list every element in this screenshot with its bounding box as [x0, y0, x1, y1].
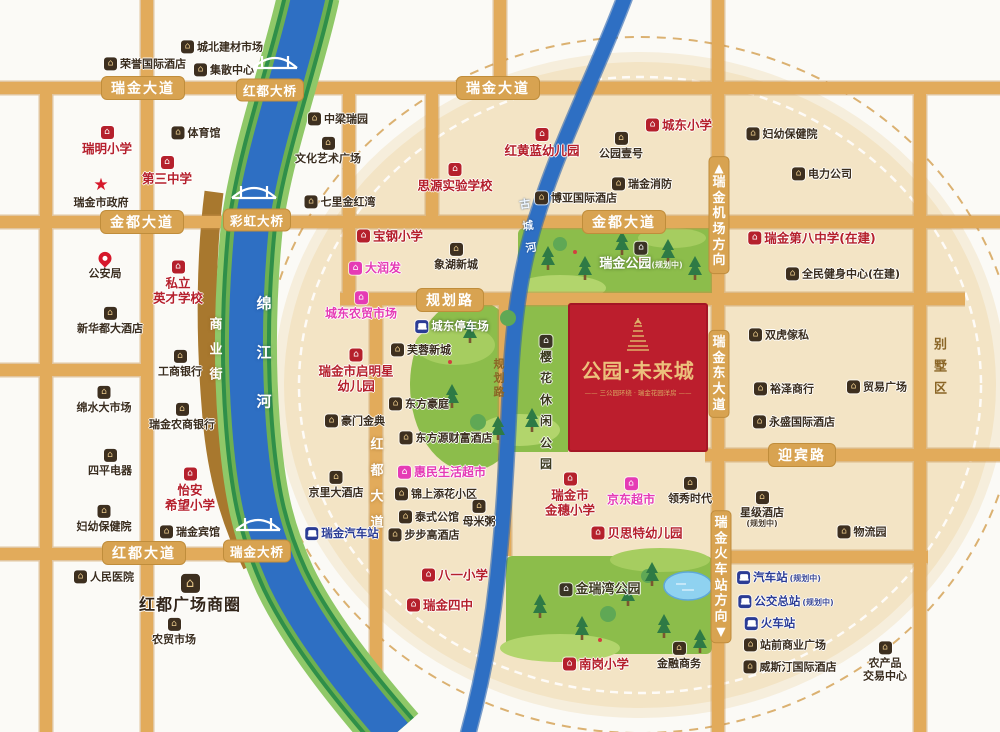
school-icon: ⌂ — [183, 468, 196, 481]
shopping-icon: ⌂ — [624, 477, 637, 490]
poi-label: 第三中学 — [142, 171, 192, 186]
road-name-badge: 红都大道 — [102, 541, 186, 565]
poi-label: 公园壹号 — [599, 147, 643, 160]
map-poi: ⌂八一小学 — [422, 568, 488, 583]
villa-district-name: 别墅区 — [934, 339, 948, 396]
poi-label: 怡安希望小学 — [165, 483, 215, 513]
poi-label: 农贸市场 — [152, 633, 196, 646]
poi-label: 惠民生活超市 — [414, 465, 486, 479]
police-pin-icon — [96, 249, 114, 267]
map-poi: ⌂南岗小学 — [563, 657, 629, 672]
map-poi: ⌂瑞金市金穗小学 — [545, 473, 595, 518]
building-icon: ⌂ — [786, 268, 799, 281]
poi-label: 京里大酒店 — [309, 486, 364, 499]
pond — [664, 572, 712, 600]
bridge-name-badge: 彩虹大桥 — [223, 209, 291, 232]
poi-label: 瑞金市金穗小学 — [545, 488, 595, 518]
poi-label: 物流园 — [854, 525, 887, 538]
map-poi: ⌂第三中学 — [142, 156, 192, 186]
school-icon: ⌂ — [160, 156, 173, 169]
poi-label: 泰式公馆 — [415, 510, 459, 523]
building-icon: ⌂ — [400, 432, 413, 445]
poi-label: 瑞金汽车站 — [321, 527, 379, 541]
map-poi: ⌂樱花休闲公园 — [540, 335, 553, 471]
map-poi: ⌂大润发 — [349, 261, 401, 275]
poi-label: 贝思特幼儿园 — [607, 526, 682, 541]
poi-label: 红黄蓝幼儿园 — [504, 143, 579, 158]
poi-label: 京东超市 — [607, 492, 655, 506]
poi-label: 八一小学 — [438, 568, 488, 583]
building-icon: ⌂ — [615, 132, 628, 145]
building-icon: ⌂ — [395, 488, 408, 501]
map-poi: 公安局 — [89, 252, 122, 280]
poi-label: 七里金红湾 — [321, 195, 376, 208]
map-poi: ★瑞金市政府 — [74, 177, 129, 209]
building-icon: ⌂ — [744, 661, 757, 674]
building-icon: ⌂ — [389, 398, 402, 411]
poi-label: 瑞金市启明星幼儿园 — [318, 364, 393, 394]
map-poi: ⌂妇幼保健院 — [77, 505, 132, 533]
building-icon: ⌂ — [612, 178, 625, 191]
poi-label: 思源实验学校 — [417, 178, 492, 193]
hongdu-avenue-vertical-name: 红都大道 — [370, 439, 383, 530]
map-poi: ⌂双虎傢私 — [749, 328, 809, 341]
road-name-badge-vertical: 瑞金东大道 — [708, 330, 729, 418]
map-poi: ⌂领秀时代 — [668, 477, 712, 505]
map-poi: ⌂公园壹号 — [599, 132, 643, 160]
poi-label: 瑞金农商银行 — [149, 418, 215, 431]
map-poi: ⌂瑞金四中 — [407, 598, 473, 613]
building-icon: ⌂ — [98, 386, 111, 399]
poi-label: 四平电器 — [88, 464, 132, 477]
map-poi: ⌂中梁瑞园 — [308, 112, 368, 125]
map-poi: ⌂豪门金典 — [325, 414, 385, 427]
building-icon: ⌂ — [753, 416, 766, 429]
map-poi: ⌂工商银行 — [158, 350, 202, 378]
building-icon: ⌂ — [744, 639, 757, 652]
shopping-icon: ⌂ — [398, 465, 411, 478]
poi-label: 大润发 — [365, 261, 401, 275]
building-icon: ⌂ — [104, 449, 117, 462]
poi-label: 电力公司 — [808, 167, 852, 180]
school-icon: ⌂ — [349, 349, 362, 362]
building-icon: ⌂ — [535, 192, 548, 205]
poi-label: 荣誉国际酒店 — [120, 57, 186, 70]
poi-label: 公交总站(规划中) — [754, 595, 833, 609]
poi-label: 芙蓉新城 — [407, 343, 451, 356]
poi-label: 威斯汀国际酒店 — [760, 660, 837, 673]
map-poi: ⌂博亚国际酒店 — [535, 191, 617, 204]
building-icon: ⌂ — [305, 196, 318, 209]
road-name-badge: 瑞金大道 — [101, 76, 185, 100]
map-poi: ⌂体育馆 — [172, 126, 221, 139]
poi-label: 火车站 — [761, 617, 796, 631]
poi-label: 文化艺术广场 — [295, 152, 361, 165]
map-poi: ⌂京里大酒店 — [309, 471, 364, 499]
building-icon: ⌂ — [325, 415, 338, 428]
shopping-icon: ⌂ — [349, 261, 362, 274]
poi-label: 东方豪庭 — [405, 397, 449, 410]
bus-icon — [305, 527, 318, 540]
road-name-badge: 金都大道 — [582, 210, 666, 234]
poi-label: 豪门金典 — [341, 414, 385, 427]
poi-label: 中梁瑞园 — [324, 112, 368, 125]
poi-label: 锦上添花小区 — [411, 487, 477, 500]
project-site-block: 公园·未来城 —— 三公园环绕 · 瑞金花园洋房 —— — [568, 303, 708, 452]
poi-label: 城东农贸市场 — [325, 306, 397, 320]
map-poi: ⌂思源实验学校 — [417, 163, 492, 193]
school-icon: ⌂ — [563, 473, 576, 486]
project-name: 公园·未来城 — [581, 355, 695, 384]
map-poi: 汽车站(规划中) — [737, 571, 821, 585]
poi-label: 象湖新城 — [434, 258, 478, 271]
poi-label: 全民健身中心(在建) — [802, 267, 900, 280]
building-icon: ⌂ — [308, 113, 321, 126]
map-poi: ⌂瑞金第八中学(在建) — [748, 231, 875, 246]
map-poi: ⌂农贸市场 — [152, 618, 196, 646]
bus-glyph — [740, 574, 748, 579]
bus-icon — [745, 617, 758, 630]
poi-label: 贸易广场 — [863, 380, 907, 393]
shopping-icon: ⌂ — [354, 291, 367, 304]
map-poi: ⌂永盛国际酒店 — [753, 415, 835, 428]
map-poi: ⌂瑞明小学 — [82, 126, 132, 156]
arrow-down-icon: ▼ — [716, 626, 725, 638]
map-poi: ⌂瑞金公园(规划中) — [599, 242, 682, 273]
poi-label: 瑞金公园(规划中) — [599, 257, 682, 273]
mall-icon: ⌂ — [180, 574, 199, 593]
map-poi: ⌂城东农贸市场 — [325, 291, 397, 320]
building-icon: ⌂ — [792, 168, 805, 181]
map-poi: ⌂城北建材市场 — [181, 40, 263, 53]
poi-label: 瑞明小学 — [82, 141, 132, 156]
planned-road-vertical-name: 规划路 — [494, 359, 505, 398]
map-poi: ⌂威斯汀国际酒店 — [744, 660, 837, 673]
building-icon: ⌂ — [847, 381, 860, 394]
poi-label: 新华都大酒店 — [77, 322, 143, 335]
poi-label: 站前商业广场 — [760, 638, 826, 651]
poi-label: 瑞金市政府 — [74, 196, 129, 209]
map-poi: ⌂步步高酒店 — [389, 528, 460, 541]
location-map: 公园·未来城 —— 三公园环绕 · 瑞金花园洋房 —— 瑞金大道瑞金大道金都大道… — [0, 0, 1000, 732]
poi-label: 裕泽商行 — [770, 382, 814, 395]
building-icon: ⌂ — [98, 505, 111, 518]
building-icon: ⌂ — [174, 350, 187, 363]
poi-label: 樱花休闲公园 — [540, 350, 552, 471]
map-poi: ⌂怡安希望小学 — [165, 468, 215, 513]
map-poi: ⌂全民健身中心(在建) — [786, 267, 900, 280]
poi-label: 星级酒店(规划中) — [740, 506, 784, 529]
map-poi: ⌂绵水大市场 — [77, 386, 132, 414]
bus-icon — [738, 595, 751, 608]
poi-label: 公安局 — [89, 267, 122, 280]
poi-label: 妇幼保健院 — [763, 127, 818, 140]
map-poi: ⌂人民医院 — [74, 570, 134, 583]
poi-label: 博亚国际酒店 — [551, 191, 617, 204]
building-icon: ⌂ — [754, 383, 767, 396]
building-icon: ⌂ — [194, 64, 207, 77]
school-icon: ⌂ — [646, 119, 659, 132]
poi-label: 瑞金第八中学(在建) — [764, 231, 875, 246]
map-poi: ⌂瑞金消防 — [612, 177, 672, 190]
school-icon: ⌂ — [422, 569, 435, 582]
map-poi: ⌂东方源财富酒店 — [400, 431, 493, 444]
poi-label: 金融商务 — [657, 657, 701, 670]
map-poi: ⌂物流园 — [838, 525, 887, 538]
building-icon: ⌂ — [160, 526, 173, 539]
bus-icon — [415, 320, 428, 333]
park-pavilion-icon: ⌂ — [634, 242, 647, 255]
building-icon: ⌂ — [391, 344, 404, 357]
map-poi: ⌂贸易广场 — [847, 380, 907, 393]
poi-label: 工商银行 — [158, 365, 202, 378]
map-poi: ⌂城东小学 — [646, 118, 712, 133]
poi-label: 瑞金宾馆 — [176, 525, 220, 538]
map-poi: ⌂锦上添花小区 — [395, 487, 477, 500]
mianjiang-river-name: 绵江河 — [256, 297, 271, 410]
building-icon: ⌂ — [104, 58, 117, 71]
map-poi: ⌂芙蓉新城 — [391, 343, 451, 356]
building-icon: ⌂ — [399, 511, 412, 524]
map-poi: ⌂集散中心 — [194, 63, 254, 76]
poi-label: 城东停车场 — [431, 320, 489, 334]
bus-glyph — [747, 620, 755, 625]
poi-label: 集散中心 — [210, 63, 254, 76]
building-icon: ⌂ — [181, 41, 194, 54]
school-icon: ⌂ — [563, 658, 576, 671]
map-poi: ⌂金融商务 — [657, 642, 701, 670]
poi-label: 双虎傢私 — [765, 328, 809, 341]
building-icon: ⌂ — [756, 491, 769, 504]
map-poi: ⌂红黄蓝幼儿园 — [504, 128, 579, 158]
poi-label: 领秀时代 — [668, 492, 712, 505]
building-icon: ⌂ — [473, 500, 486, 513]
map-poi: ⌂星级酒店(规划中) — [740, 491, 784, 529]
poi-label: 妇幼保健院 — [77, 520, 132, 533]
map-poi: ⌂妇幼保健院 — [747, 127, 818, 140]
arrow-up-icon: ▲ — [714, 162, 723, 174]
road-name-badge: 迎宾路 — [768, 443, 836, 467]
direction-badge: 瑞金火车站方向▼ — [710, 510, 731, 643]
building-icon: ⌂ — [168, 618, 181, 631]
map-poi: 火车站 — [745, 617, 796, 631]
map-poi: ⌂裕泽商行 — [754, 382, 814, 395]
commercial-street-name: 商业街 — [209, 319, 222, 382]
map-poi: ⌂泰式公馆 — [399, 510, 459, 523]
building-icon: ⌂ — [684, 477, 697, 490]
school-icon: ⌂ — [591, 527, 604, 540]
map-poi: ⌂站前商业广场 — [744, 638, 826, 651]
school-icon: ⌂ — [100, 126, 113, 139]
building-icon: ⌂ — [838, 526, 851, 539]
building-icon: ⌂ — [450, 243, 463, 256]
map-poi: 城东停车场 — [415, 320, 489, 334]
map-poi: ⌂惠民生活超市 — [398, 465, 486, 479]
school-icon: ⌂ — [535, 128, 548, 141]
map-poi: ⌂金瑞湾公园 — [559, 582, 640, 598]
map-poi: ⌂私立英才学校 — [153, 261, 203, 306]
map-poi: ⌂电力公司 — [792, 167, 852, 180]
poi-label: 城北建材市场 — [197, 40, 263, 53]
road-name-badge: 规划路 — [416, 288, 484, 312]
map-poi: 公交总站(规划中) — [738, 595, 833, 609]
map-poi: ⌂农产品交易中心 — [863, 641, 907, 682]
poi-label: 母米粥 — [463, 515, 496, 528]
map-poi: ⌂宝钢小学 — [357, 229, 423, 244]
map-poi: ⌂文化艺术广场 — [295, 137, 361, 165]
bus-glyph — [418, 323, 426, 328]
map-poi: ⌂新华都大酒店 — [77, 307, 143, 335]
park-pavilion-icon: ⌂ — [559, 584, 572, 597]
poi-label: 东方源财富酒店 — [416, 431, 493, 444]
map-poi: ⌂东方豪庭 — [389, 397, 449, 410]
map-poi: ⌂瑞金农商银行 — [149, 403, 215, 431]
school-icon: ⌂ — [407, 599, 420, 612]
building-icon: ⌂ — [879, 641, 892, 654]
poi-label: 农产品交易中心 — [863, 656, 907, 682]
school-icon: ⌂ — [748, 232, 761, 245]
bus-glyph — [741, 598, 749, 603]
bridge-name-badge: 瑞金大桥 — [223, 540, 291, 563]
road-name-badge: 金都大道 — [100, 210, 184, 234]
poi-label: 红都广场商圈 — [139, 595, 241, 614]
poi-label: 体育馆 — [188, 126, 221, 139]
poi-label: 金瑞湾公园 — [575, 582, 640, 598]
direction-badge: ▲瑞金机场方向 — [708, 156, 729, 274]
map-poi: ⌂瑞金宾馆 — [160, 525, 220, 538]
building-icon: ⌂ — [176, 403, 189, 416]
map-poi: ⌂红都广场商圈 — [139, 574, 241, 614]
building-icon: ⌂ — [104, 307, 117, 320]
map-poi: ⌂贝思特幼儿园 — [591, 526, 682, 541]
school-icon: ⌂ — [171, 261, 184, 274]
park-pavilion-icon: ⌂ — [540, 335, 553, 348]
pagoda-icon — [623, 317, 653, 353]
map-poi: ⌂京东超市 — [607, 477, 655, 506]
poi-label: 永盛国际酒店 — [769, 415, 835, 428]
building-icon: ⌂ — [747, 128, 760, 141]
bus-icon — [737, 571, 750, 584]
poi-label: 私立英才学校 — [153, 276, 203, 306]
poi-label: 南岗小学 — [579, 657, 629, 672]
poi-label: 城东小学 — [662, 118, 712, 133]
building-icon: ⌂ — [389, 529, 402, 542]
road-name-badge: 瑞金大道 — [456, 76, 540, 100]
building-icon: ⌂ — [330, 471, 343, 484]
poi-label: 瑞金四中 — [423, 598, 473, 613]
poi-label: 人民医院 — [90, 570, 134, 583]
building-icon: ⌂ — [673, 642, 686, 655]
poi-label: 汽车站(规划中) — [753, 571, 821, 585]
poi-label: 宝钢小学 — [373, 229, 423, 244]
building-icon: ⌂ — [749, 329, 762, 342]
map-poi: ⌂七里金红湾 — [305, 195, 376, 208]
map-poi: ⌂四平电器 — [88, 449, 132, 477]
map-poi: ⌂荣誉国际酒店 — [104, 57, 186, 70]
school-icon: ⌂ — [357, 230, 370, 243]
government-star-icon: ★ — [93, 177, 108, 194]
building-icon: ⌂ — [172, 127, 185, 140]
project-tagline: —— 三公园环绕 · 瑞金花园洋房 —— — [585, 388, 692, 397]
map-poi: ⌂母米粥 — [463, 500, 496, 528]
map-poi: 瑞金汽车站 — [305, 527, 379, 541]
bus-glyph — [308, 530, 316, 535]
poi-label: 绵水大市场 — [77, 401, 132, 414]
school-icon: ⌂ — [448, 163, 461, 176]
map-poi: ⌂象湖新城 — [434, 243, 478, 271]
poi-label: 步步高酒店 — [405, 528, 460, 541]
building-icon: ⌂ — [322, 137, 335, 150]
map-poi: ⌂瑞金市启明星幼儿园 — [318, 349, 393, 394]
building-icon: ⌂ — [74, 571, 87, 584]
bridge-name-badge: 红都大桥 — [236, 79, 304, 102]
poi-label: 瑞金消防 — [628, 177, 672, 190]
